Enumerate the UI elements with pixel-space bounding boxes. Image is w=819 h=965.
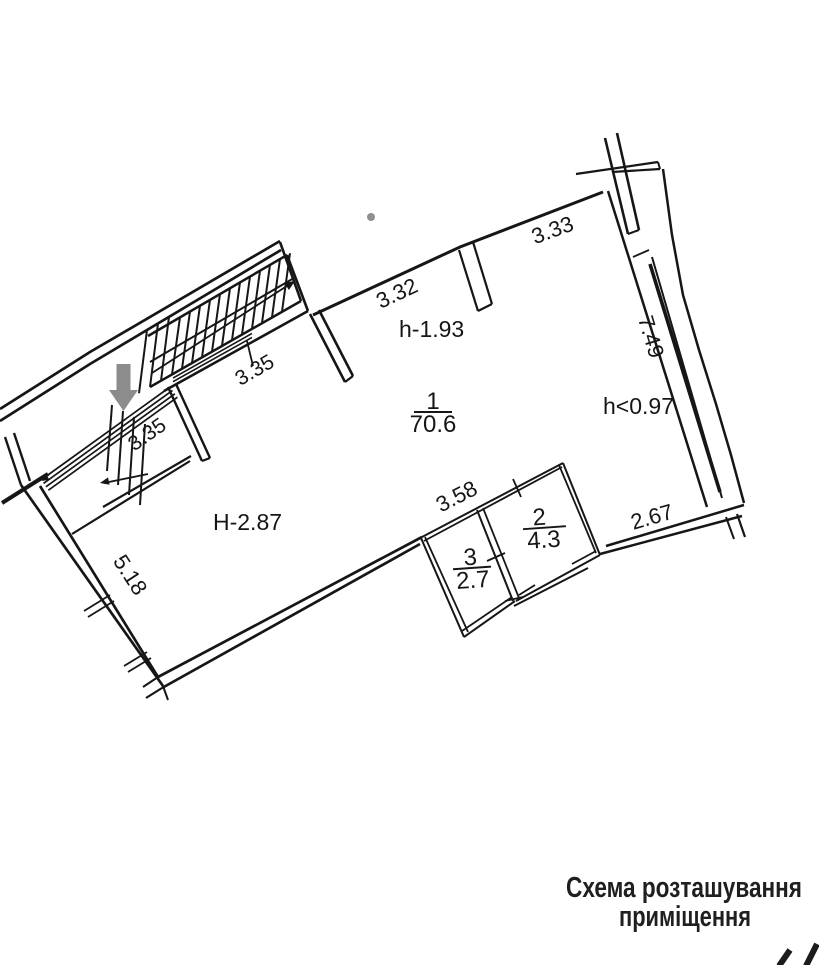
svg-text:3.32: 3.32 — [372, 273, 421, 314]
svg-text:H-2.87: H-2.87 — [213, 509, 282, 535]
svg-text:5.18: 5.18 — [108, 550, 152, 600]
svg-text:h<0.97: h<0.97 — [603, 393, 674, 419]
svg-text:приміщення: приміщення — [619, 901, 751, 933]
svg-text:7.49: 7.49 — [633, 313, 669, 361]
svg-text:4.3: 4.3 — [526, 526, 561, 555]
svg-text:2.67: 2.67 — [628, 499, 676, 535]
svg-text:h-1.93: h-1.93 — [399, 316, 464, 342]
svg-text:3.58: 3.58 — [432, 475, 482, 517]
svg-text:3.35: 3.35 — [231, 350, 278, 390]
svg-text:2.7: 2.7 — [455, 566, 490, 595]
svg-text:Схема розташування: Схема розташування — [566, 872, 802, 904]
svg-text:70.6: 70.6 — [410, 411, 457, 438]
